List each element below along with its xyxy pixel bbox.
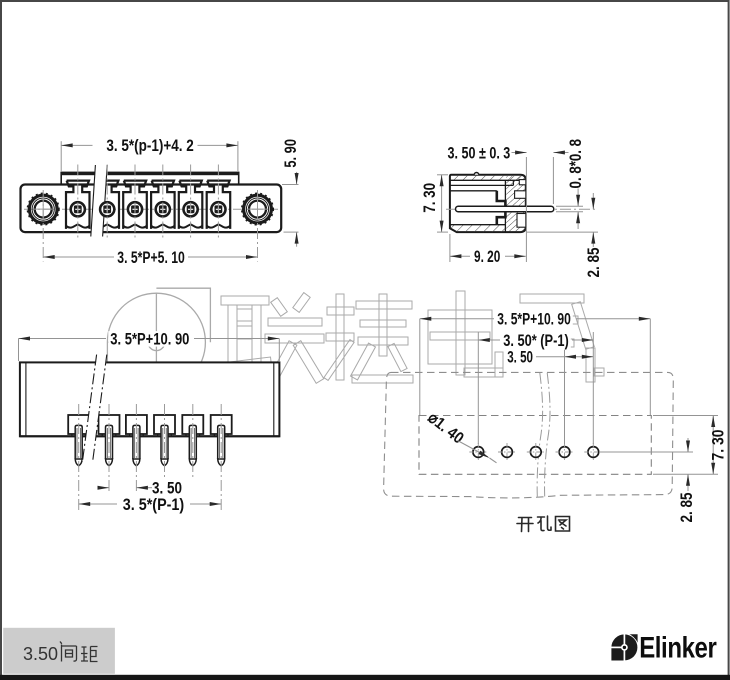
svg-text:9. 20: 9. 20 [474, 248, 500, 266]
svg-text:2. 85: 2. 85 [585, 248, 603, 278]
svg-text:7. 30: 7. 30 [709, 430, 727, 461]
svg-text:Elinker: Elinker [639, 630, 717, 664]
svg-text:5. 90: 5. 90 [282, 139, 300, 168]
svg-text:7. 30: 7. 30 [421, 183, 439, 213]
svg-text:3. 50: 3. 50 [152, 480, 182, 498]
svg-text:3. 5*(P-1): 3. 5*(P-1) [123, 496, 184, 514]
svg-text:3. 5*P+5. 10: 3. 5*P+5. 10 [117, 249, 185, 267]
svg-text:3. 5*(p-1)+4. 2: 3. 5*(p-1)+4. 2 [106, 137, 193, 155]
svg-text:3. 50 ± 0. 3: 3. 50 ± 0. 3 [448, 144, 511, 162]
svg-text:2. 85: 2. 85 [678, 493, 696, 523]
svg-text:3. 5*P+10. 90: 3. 5*P+10. 90 [497, 311, 571, 329]
svg-text:0. 8*0. 8: 0. 8*0. 8 [567, 139, 585, 189]
svg-text:3. 50* (P-1): 3. 50* (P-1) [503, 332, 569, 350]
svg-text:3.50: 3.50 [23, 644, 58, 664]
svg-text:3. 50: 3. 50 [507, 349, 533, 367]
svg-text:3. 5*P+10. 90: 3. 5*P+10. 90 [110, 330, 189, 348]
